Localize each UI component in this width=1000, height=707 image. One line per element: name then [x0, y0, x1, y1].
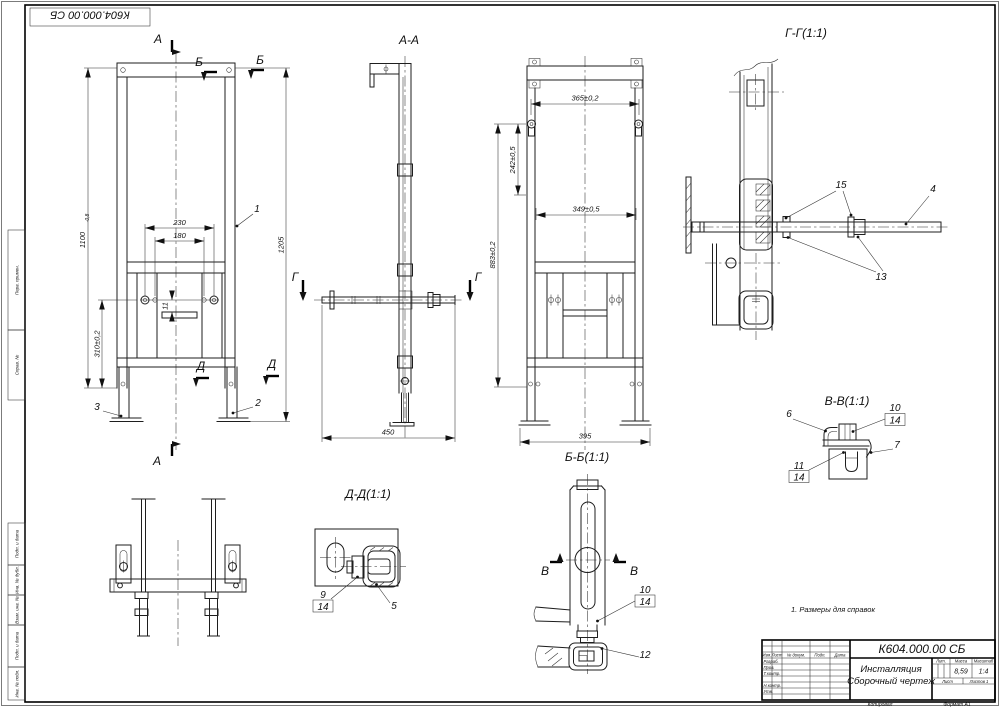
dim-349: 349±0,5	[572, 205, 600, 214]
dim-1100-tolerance: -0,8	[85, 213, 91, 222]
section-letter-d-1: Д	[195, 359, 206, 373]
title-row-tkontr: Т.контр.	[764, 671, 781, 676]
balloon-9: 9	[320, 590, 326, 601]
margin-label-inv-podl: Инв. № подл.	[15, 670, 20, 698]
flange-hatch	[686, 183, 691, 249]
title-block: К604.000.00 СБ Инсталляция Сборочный чер…	[762, 640, 995, 707]
title-copied: Копировал	[868, 702, 893, 707]
title-hdr-doc: № докум.	[787, 653, 805, 658]
title-name-line2: Сборочный чертеж	[847, 676, 935, 687]
section-letter-b-2: Б	[256, 53, 264, 67]
section-vv-view: В-В(1:1) 6 10 14 7 11 14	[786, 394, 905, 484]
balloon-14-lower: 14	[793, 473, 805, 484]
sheet-frame	[2, 2, 999, 706]
view-label-gg: Г-Г(1:1)	[785, 26, 827, 40]
balloon-2: 2	[254, 398, 261, 409]
bottom-view	[110, 499, 246, 646]
margin-label-podp-data-1: Подп. и дата	[15, 529, 20, 558]
section-gg-view: Г-Г(1:1) 15 4 13	[683, 26, 949, 340]
section-dd-view: Д-Д(1:1) 9 14 5	[313, 487, 406, 613]
leg-detail-view: В В 10 14 12	[534, 474, 655, 674]
margin-label-vzam-inv: Взам. инв. №	[15, 596, 20, 624]
title-lbl-lit: Лит.	[935, 659, 946, 664]
dim-450: 450	[382, 428, 395, 437]
balloon-10: 10	[889, 403, 901, 414]
title-doc-number: К604.000.00 СБ	[879, 642, 966, 656]
dim-395: 395	[579, 432, 592, 441]
dim-365: 365±0,2	[571, 94, 599, 103]
dim-1205: 1205	[277, 236, 286, 254]
section-letter-a-bottom: А	[152, 454, 161, 468]
title-mass-value: 8,59	[954, 669, 968, 676]
balloon-5: 5	[391, 601, 397, 612]
view-label-vv: В-В(1:1)	[825, 394, 870, 408]
dim-11: 11	[161, 302, 170, 310]
section-letter-d-2: Д	[266, 357, 277, 371]
section-bb-view: 365±0,2 242±0,5 349±0,5 883±0,2 395 Б-Б(…	[488, 56, 651, 464]
dim-180: 180	[173, 231, 186, 240]
title-lbl-listov: Листов 1	[969, 679, 989, 684]
section-letter-v-left: В	[541, 564, 549, 578]
section-letter-a-top: А	[153, 32, 162, 46]
balloon-12: 12	[639, 650, 651, 661]
margin-label-sprav-no: Справ. №	[15, 355, 20, 376]
title-row-nkontr: Н.контр.	[764, 683, 782, 688]
balloon-1: 1	[254, 204, 260, 215]
title-format: Формат A1	[943, 702, 971, 707]
margin-label-podp-data-2: Подп. и дата	[15, 631, 20, 660]
balloon-3: 3	[94, 402, 100, 413]
title-lbl-list: Лист	[941, 679, 953, 684]
title-row-prov: Пров.	[764, 665, 775, 670]
balloon-14-upper: 14	[889, 416, 901, 427]
view-label-aa: А-А	[398, 33, 419, 47]
title-row-utv: Утв.	[764, 689, 774, 694]
title-hdr-data: Дата	[833, 653, 846, 658]
corner-stamp: К604.000.00 СБ	[30, 8, 150, 26]
balloon-7: 7	[894, 440, 900, 451]
balloon-4: 4	[930, 184, 936, 195]
view-label-dd: Д-Д(1:1)	[343, 487, 391, 501]
reference-note: 1. Размеры для справок	[791, 605, 875, 614]
front-view: А А Б Б Д Д 1100 -0,8 310±0,2 1205 230 1…	[78, 32, 290, 468]
dim-310: 310±0,2	[93, 330, 102, 358]
title-scale-value: 1:4	[979, 669, 989, 676]
margin-label-perv-primen: Перв. примен.	[15, 265, 20, 295]
title-lbl-scale: Масштаб	[974, 659, 994, 664]
margin-column: Перв. примен. Справ. № Подп. и дата Инв.…	[8, 230, 25, 700]
section-letter-g-left: Г	[292, 270, 300, 284]
corner-stamp-number: К604.000.00 СБ	[50, 9, 130, 21]
balloon-13: 13	[875, 272, 887, 283]
dim-230: 230	[172, 218, 186, 227]
section-letter-b-1: Б	[195, 55, 203, 69]
section-letter-v-right: В	[630, 564, 638, 578]
drawing-canvas: К604.000.00 СБ Перв. примен. Справ. № По…	[0, 0, 1000, 707]
section-letter-g-right: Г	[475, 270, 483, 284]
title-hdr-list: Лист	[771, 653, 783, 658]
title-hdr-podp: Подп.	[814, 653, 825, 658]
balloon-14-leg: 14	[639, 597, 651, 608]
balloon-6: 6	[786, 409, 792, 420]
balloon-14-dd: 14	[317, 602, 329, 613]
title-lbl-mass: Масса	[955, 659, 968, 664]
title-row-razrab: Разраб.	[764, 659, 779, 664]
balloon-15: 15	[835, 180, 847, 191]
drawing-sheet: К604.000.00 СБ Перв. примен. Справ. № По…	[0, 0, 1000, 707]
dim-883: 883±0,2	[488, 241, 497, 269]
margin-label-inv-dubl: Инв. № дубл.	[15, 566, 20, 594]
dim-1100: 1100	[78, 231, 87, 248]
dim-242: 242±0,5	[508, 146, 517, 175]
balloon-10-leg: 10	[639, 585, 651, 596]
view-label-bb: Б-Б(1:1)	[565, 450, 609, 464]
title-hdr-izm: Изм.	[763, 653, 772, 658]
section-aa-view: А-А Г Г 450	[292, 33, 483, 442]
title-name-line1: Инсталляция	[860, 664, 921, 675]
